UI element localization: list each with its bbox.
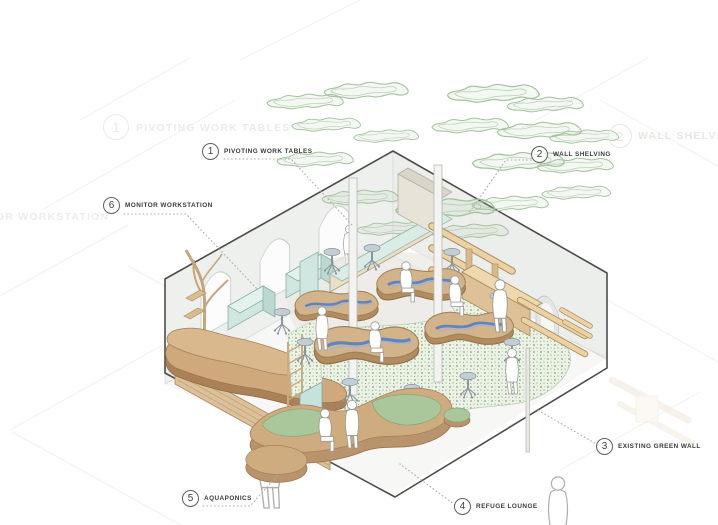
- callout-label-existing-green-wall: EXISTING GREEN WALL: [618, 443, 701, 450]
- callout-label-wall-shelving: WALL SHELVING: [553, 151, 611, 158]
- ghost-label-pivoting-work-tables: PIVOTING WORK TABLES: [136, 122, 290, 134]
- ghost-label-workstation: OR WORKSTATION: [0, 211, 109, 223]
- callout-label-monitor-workstation: MONITOR WORKSTATION: [125, 202, 213, 209]
- callout-label-refuge-lounge: REFUGE LOUNGE: [476, 503, 538, 510]
- callout-circle-4: 4: [454, 498, 471, 515]
- axonometric-diagram-canvas: 1 PIVOTING WORK TABLES 2 WALL SHELVING O…: [0, 0, 718, 525]
- callout-circle-1: 1: [202, 143, 219, 160]
- callout-circle-2: 2: [531, 146, 548, 163]
- ghost-shelving-right: [612, 380, 690, 442]
- ghost-callout-circle-2: 2: [608, 124, 632, 148]
- callout-circle-3: 3: [596, 438, 613, 455]
- callout-label-pivoting-work-tables: PIVOTING WORK TABLES: [224, 148, 312, 155]
- callout-circle-6: 6: [103, 197, 120, 214]
- callout-label-aquaponics: AQUAPONICS: [204, 495, 252, 502]
- callout-circle-5: 5: [182, 490, 199, 507]
- ghost-label-wall-shelving: WALL SHELVING: [638, 130, 718, 142]
- ghost-callout-circle-1: 1: [103, 114, 129, 140]
